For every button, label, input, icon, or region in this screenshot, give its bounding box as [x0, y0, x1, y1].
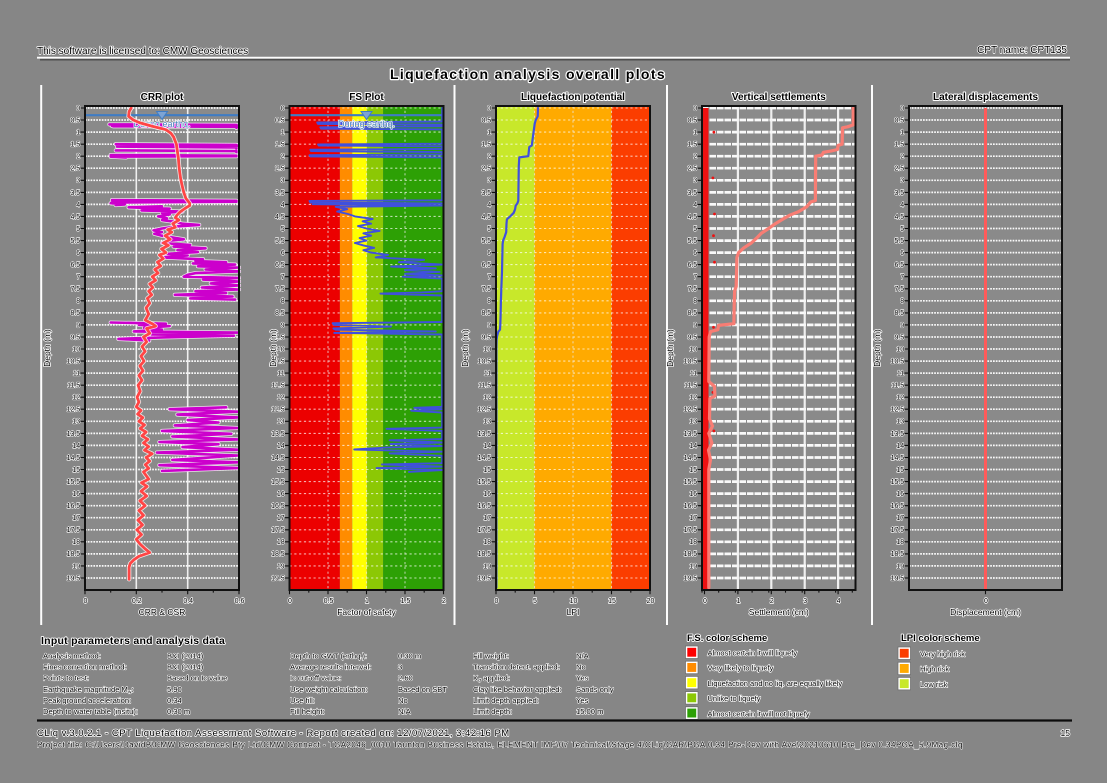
svg-text:8.5: 8.5	[70, 310, 80, 317]
svg-text:10.5: 10.5	[684, 358, 698, 365]
svg-text:6.5: 6.5	[687, 262, 697, 269]
svg-text:19.5: 19.5	[271, 575, 285, 582]
svg-text:12: 12	[483, 395, 491, 402]
svg-text:Depth (m): Depth (m)	[665, 329, 675, 367]
svg-text:10: 10	[72, 346, 80, 353]
svg-text:7: 7	[76, 274, 80, 281]
svg-text:10.5: 10.5	[891, 358, 905, 365]
svg-text:9: 9	[487, 322, 491, 329]
svg-text:3.5: 3.5	[894, 190, 904, 197]
svg-text:Fill weight:: Fill weight:	[473, 651, 509, 660]
svg-text:8.5: 8.5	[275, 310, 285, 317]
svg-text:Almost certain it will liquefy: Almost certain it will liquefy	[708, 649, 798, 658]
svg-text:1.5: 1.5	[481, 142, 491, 149]
svg-text:12.5: 12.5	[891, 407, 905, 414]
svg-text:No: No	[398, 696, 408, 705]
svg-text:10: 10	[483, 346, 491, 353]
svg-text:0.5: 0.5	[894, 118, 904, 125]
svg-text:15: 15	[483, 467, 491, 474]
svg-text:Fill height:: Fill height:	[290, 707, 325, 716]
svg-text:13: 13	[689, 419, 697, 426]
svg-text:14: 14	[483, 443, 491, 450]
svg-text:12: 12	[896, 395, 904, 402]
svg-text:17.5: 17.5	[684, 527, 698, 534]
svg-text:11: 11	[897, 371, 904, 378]
svg-text:3.5: 3.5	[687, 190, 697, 197]
svg-text:10: 10	[277, 346, 285, 353]
svg-text:1: 1	[693, 130, 697, 137]
svg-text:18: 18	[72, 539, 80, 546]
svg-text:3: 3	[487, 178, 491, 185]
svg-text:3.5: 3.5	[481, 190, 491, 197]
svg-text:0: 0	[984, 598, 988, 605]
svg-text:4.5: 4.5	[894, 214, 904, 221]
svg-text:4: 4	[281, 202, 285, 209]
svg-text:18.5: 18.5	[684, 551, 698, 558]
svg-text:11.5: 11.5	[684, 383, 697, 390]
svg-text:Input parameters and analysis: Input parameters and analysis data	[41, 635, 225, 647]
svg-text:Yes: Yes	[576, 696, 589, 705]
svg-text:5.5: 5.5	[687, 238, 697, 245]
svg-text:15.00 m: 15.00 m	[576, 707, 603, 716]
svg-text:19.5: 19.5	[891, 575, 905, 582]
svg-text:N/A: N/A	[398, 707, 412, 716]
svg-text:2: 2	[281, 154, 285, 161]
svg-text:0.5: 0.5	[70, 118, 80, 125]
svg-text:Displacement (cm): Displacement (cm)	[950, 607, 1021, 617]
svg-text:18.5: 18.5	[67, 551, 81, 558]
svg-text:2: 2	[770, 598, 774, 605]
svg-text:3: 3	[76, 178, 80, 185]
svg-text:11.5: 11.5	[272, 383, 285, 390]
svg-text:12: 12	[277, 395, 285, 402]
svg-text:Earthquake magnitude Mw:: Earthquake magnitude Mw:	[43, 685, 134, 696]
svg-text:17.5: 17.5	[67, 527, 81, 534]
svg-text:15.5: 15.5	[684, 479, 698, 486]
svg-text:3.5: 3.5	[70, 190, 80, 197]
svg-text:2: 2	[76, 154, 80, 161]
svg-text:5: 5	[693, 226, 697, 233]
svg-text:11: 11	[277, 371, 284, 378]
svg-text:0.2: 0.2	[132, 598, 142, 605]
svg-text:15: 15	[896, 467, 904, 474]
svg-text:14.5: 14.5	[891, 455, 905, 462]
svg-text:0.5: 0.5	[275, 118, 285, 125]
svg-text:16.5: 16.5	[684, 503, 698, 510]
svg-text:B&I (2014): B&I (2014)	[167, 651, 204, 660]
svg-text:No: No	[576, 663, 586, 672]
svg-text:1.5: 1.5	[894, 142, 904, 149]
svg-text:0.5: 0.5	[324, 598, 334, 605]
svg-text:16.5: 16.5	[271, 503, 285, 510]
svg-text:6: 6	[281, 250, 285, 257]
svg-text:16: 16	[483, 491, 491, 498]
svg-text:2.5: 2.5	[481, 166, 491, 173]
svg-text:During earthq.: During earthq.	[338, 119, 395, 129]
svg-text:5: 5	[900, 226, 904, 233]
svg-text:1: 1	[736, 598, 740, 605]
svg-text:Depth (m): Depth (m)	[460, 329, 470, 367]
svg-text:Limit depth:: Limit depth:	[473, 707, 512, 716]
svg-text:0: 0	[84, 598, 88, 605]
svg-text:8: 8	[487, 298, 491, 305]
svg-text:3: 3	[693, 178, 697, 185]
svg-text:14: 14	[689, 443, 697, 450]
svg-text:Use weight calculation:: Use weight calculation:	[290, 685, 368, 694]
svg-text:7: 7	[487, 274, 491, 281]
svg-text:14: 14	[277, 443, 285, 450]
svg-text:2.5: 2.5	[275, 166, 285, 173]
svg-text:LPI: LPI	[567, 607, 580, 617]
svg-text:17: 17	[72, 515, 80, 522]
svg-text:0: 0	[900, 105, 904, 112]
svg-text:5.5: 5.5	[70, 238, 80, 245]
svg-text:15: 15	[72, 467, 80, 474]
svg-text:6: 6	[900, 250, 904, 257]
svg-text:Average results interval:: Average results interval:	[290, 663, 371, 672]
svg-text:8: 8	[900, 298, 904, 305]
svg-text:18: 18	[689, 539, 697, 546]
svg-text:16: 16	[896, 491, 904, 498]
svg-text:6.5: 6.5	[481, 262, 491, 269]
svg-text:7.5: 7.5	[275, 286, 285, 293]
svg-text:N/A: N/A	[576, 651, 590, 660]
svg-text:Depth (m): Depth (m)	[268, 329, 278, 367]
svg-text:Sands only: Sands only	[576, 685, 614, 694]
svg-text:0.4: 0.4	[183, 598, 193, 605]
svg-text:2: 2	[693, 154, 697, 161]
svg-text:5.90: 5.90	[167, 685, 182, 694]
svg-text:Liquefaction and no liq. are e: Liquefaction and no liq. are equally lik…	[708, 679, 843, 688]
svg-text:0: 0	[495, 598, 499, 605]
svg-text:10.5: 10.5	[67, 358, 81, 365]
svg-text:9.5: 9.5	[687, 334, 697, 341]
svg-text:3: 3	[281, 178, 285, 185]
svg-text:18.5: 18.5	[891, 551, 905, 558]
svg-text:9.5: 9.5	[894, 334, 904, 341]
svg-text:8.5: 8.5	[481, 310, 491, 317]
svg-text:5: 5	[533, 598, 537, 605]
svg-text:Low risk: Low risk	[920, 680, 948, 689]
svg-text:B&I (2014): B&I (2014)	[167, 663, 204, 672]
svg-text:16: 16	[689, 491, 697, 498]
svg-text:9.5: 9.5	[70, 334, 80, 341]
svg-text:12.5: 12.5	[478, 407, 492, 414]
svg-text:5: 5	[76, 226, 80, 233]
svg-text:14: 14	[896, 443, 904, 450]
svg-text:4: 4	[76, 202, 80, 209]
svg-text:Clay like behavior applied:: Clay like behavior applied:	[473, 685, 562, 694]
svg-text:Analysis method:: Analysis method:	[43, 651, 101, 660]
svg-text:8.5: 8.5	[894, 310, 904, 317]
svg-text:13.5: 13.5	[478, 431, 492, 438]
svg-text:Depth (m): Depth (m)	[872, 329, 882, 367]
svg-text:LPI color scheme: LPI color scheme	[901, 633, 980, 644]
svg-text:4.5: 4.5	[70, 214, 80, 221]
svg-text:1.5: 1.5	[401, 598, 411, 605]
svg-text:15: 15	[608, 598, 616, 605]
svg-text:1: 1	[281, 130, 285, 137]
svg-text:20: 20	[647, 598, 655, 605]
svg-text:0: 0	[703, 598, 707, 605]
svg-text:7: 7	[693, 274, 697, 281]
svg-text:11.5: 11.5	[67, 383, 80, 390]
svg-text:17: 17	[689, 515, 697, 522]
svg-text:14.5: 14.5	[684, 455, 698, 462]
svg-text:Very high risk: Very high risk	[920, 650, 965, 659]
svg-text:19: 19	[72, 563, 80, 570]
svg-text:Almost certain it will not liq: Almost certain it will not liquefy	[708, 709, 810, 718]
svg-text:17: 17	[896, 515, 904, 522]
svg-text:11: 11	[484, 371, 491, 378]
svg-text:0.5: 0.5	[481, 118, 491, 125]
svg-text:3: 3	[900, 178, 904, 185]
svg-text:8: 8	[76, 298, 80, 305]
svg-text:Lateral displacements: Lateral displacements	[933, 92, 1038, 103]
svg-text:10: 10	[570, 598, 578, 605]
svg-text:2.5: 2.5	[70, 166, 80, 173]
svg-text:Factor of safety: Factor of safety	[337, 607, 396, 617]
svg-text:11.5: 11.5	[478, 383, 491, 390]
svg-text:This software is licensed to:: This software is licensed to: CMW Geosci…	[37, 46, 248, 57]
svg-text:12: 12	[689, 395, 697, 402]
svg-text:5.5: 5.5	[894, 238, 904, 245]
svg-text:High risk: High risk	[920, 665, 949, 674]
svg-text:4.5: 4.5	[481, 214, 491, 221]
svg-text:14.5: 14.5	[67, 455, 81, 462]
svg-text:0: 0	[76, 105, 80, 112]
svg-text:18: 18	[896, 539, 904, 546]
svg-text:12: 12	[72, 395, 80, 402]
svg-text:2.5: 2.5	[687, 166, 697, 173]
svg-text:F.S. color scheme: F.S. color scheme	[687, 633, 767, 644]
svg-text:19.5: 19.5	[684, 575, 698, 582]
svg-text:Limit depth applied:: Limit depth applied:	[473, 696, 539, 705]
svg-text:1: 1	[365, 598, 369, 605]
svg-text:5.5: 5.5	[275, 238, 285, 245]
svg-text:13.5: 13.5	[271, 431, 285, 438]
svg-text:Based on SBT: Based on SBT	[398, 685, 447, 694]
svg-text:7: 7	[281, 274, 285, 281]
svg-text:6: 6	[76, 250, 80, 257]
svg-text:13.5: 13.5	[891, 431, 905, 438]
svg-text:4: 4	[900, 202, 904, 209]
svg-text:8: 8	[693, 298, 697, 305]
svg-text:17.5: 17.5	[478, 527, 492, 534]
svg-text:19.5: 19.5	[67, 575, 81, 582]
svg-text:12.5: 12.5	[271, 407, 285, 414]
svg-text:CRR & CSR: CRR & CSR	[139, 607, 186, 617]
svg-text:10: 10	[689, 346, 697, 353]
svg-text:15.5: 15.5	[478, 479, 492, 486]
svg-text:6: 6	[487, 250, 491, 257]
svg-text:CLiq v.3.0.2.1 - CPT Liquefact: CLiq v.3.0.2.1 - CPT Liquefaction Assess…	[37, 728, 510, 739]
svg-text:4.5: 4.5	[687, 214, 697, 221]
svg-text:8.5: 8.5	[687, 310, 697, 317]
svg-text:0: 0	[693, 105, 697, 112]
svg-text:7.5: 7.5	[481, 286, 491, 293]
svg-text:16.5: 16.5	[478, 503, 492, 510]
svg-text:19: 19	[483, 563, 491, 570]
svg-text:16.5: 16.5	[67, 503, 81, 510]
svg-text:19: 19	[896, 563, 904, 570]
svg-text:11.5: 11.5	[891, 383, 904, 390]
svg-text:19: 19	[689, 563, 697, 570]
svg-text:18: 18	[483, 539, 491, 546]
svg-text:15.5: 15.5	[67, 479, 81, 486]
svg-text:11: 11	[73, 371, 80, 378]
svg-text:11: 11	[690, 371, 697, 378]
svg-text:0.5: 0.5	[687, 118, 697, 125]
svg-text:0.34: 0.34	[167, 696, 182, 705]
svg-text:5.5: 5.5	[481, 238, 491, 245]
svg-text:15: 15	[689, 467, 697, 474]
svg-text:9: 9	[693, 322, 697, 329]
svg-text:6.5: 6.5	[275, 262, 285, 269]
svg-text:Vertical settlements: Vertical settlements	[732, 92, 826, 103]
svg-text:Unlike to liquefy: Unlike to liquefy	[708, 694, 761, 703]
svg-text:1.5: 1.5	[275, 142, 285, 149]
svg-text:Liquefaction analysis overall: Liquefaction analysis overall plots	[390, 66, 666, 82]
svg-text:Liquefaction potential: Liquefaction potential	[521, 92, 625, 103]
svg-text:Depth to water table (insitu):: Depth to water table (insitu):	[43, 707, 138, 716]
svg-text:1.5: 1.5	[687, 142, 697, 149]
svg-text:Depth to GWT (erthq.):: Depth to GWT (erthq.):	[290, 651, 367, 660]
svg-text:17.5: 17.5	[271, 527, 285, 534]
svg-text:6.5: 6.5	[894, 262, 904, 269]
svg-text:16.5: 16.5	[891, 503, 905, 510]
svg-text:13: 13	[896, 419, 904, 426]
svg-text:9: 9	[281, 322, 285, 329]
svg-text:2: 2	[900, 154, 904, 161]
svg-text:15.5: 15.5	[891, 479, 905, 486]
svg-text:16: 16	[72, 491, 80, 498]
svg-text:4: 4	[693, 202, 697, 209]
svg-text:9.5: 9.5	[481, 334, 491, 341]
svg-text:13.5: 13.5	[67, 431, 81, 438]
svg-text:Depth (m): Depth (m)	[42, 329, 52, 367]
svg-text:Yes: Yes	[576, 674, 589, 683]
svg-text:Peak ground acceleration:: Peak ground acceleration:	[43, 696, 131, 705]
svg-text:7.5: 7.5	[687, 286, 697, 293]
svg-text:Points to test:: Points to test:	[43, 674, 89, 683]
svg-text:13: 13	[483, 419, 491, 426]
svg-text:19.5: 19.5	[478, 575, 492, 582]
svg-text:1: 1	[76, 130, 80, 137]
svg-text:1: 1	[487, 130, 491, 137]
svg-text:Fines correction method:: Fines correction method:	[43, 663, 127, 672]
svg-text:1: 1	[900, 130, 904, 137]
svg-text:0.30 m: 0.30 m	[398, 651, 421, 660]
svg-text:19: 19	[277, 563, 285, 570]
svg-text:6.5: 6.5	[70, 262, 80, 269]
svg-text:15: 15	[1061, 728, 1071, 738]
svg-text:14.5: 14.5	[271, 455, 285, 462]
svg-text:CPT name: CPT135: CPT name: CPT135	[977, 45, 1067, 56]
svg-text:0.6: 0.6	[235, 598, 245, 605]
svg-text:14.5: 14.5	[478, 455, 492, 462]
svg-text:0.30 m: 0.30 m	[167, 707, 190, 716]
svg-text:Project file: C:\Users\DavidB\: Project file: C:\Users\DavidB\CMW Geosci…	[37, 741, 963, 750]
svg-text:7.5: 7.5	[894, 286, 904, 293]
svg-text:Very likely to liquefy: Very likely to liquefy	[708, 664, 774, 673]
svg-text:3.5: 3.5	[275, 190, 285, 197]
svg-text:17.5: 17.5	[891, 527, 905, 534]
svg-text:10.5: 10.5	[478, 358, 492, 365]
svg-text:17: 17	[483, 515, 491, 522]
svg-text:1.5: 1.5	[70, 142, 80, 149]
svg-text:9: 9	[76, 322, 80, 329]
svg-text:10: 10	[896, 346, 904, 353]
svg-text:9: 9	[900, 322, 904, 329]
svg-text:18: 18	[277, 539, 285, 546]
svg-text:0: 0	[487, 105, 491, 112]
svg-text:18.5: 18.5	[271, 551, 285, 558]
svg-text:14: 14	[72, 443, 80, 450]
svg-text:13: 13	[277, 419, 285, 426]
svg-text:13: 13	[72, 419, 80, 426]
svg-text:3: 3	[803, 598, 807, 605]
svg-text:0: 0	[288, 598, 292, 605]
svg-text:4.5: 4.5	[275, 214, 285, 221]
svg-text:7: 7	[900, 274, 904, 281]
svg-text:Ic cut-off value:: Ic cut-off value:	[290, 674, 341, 683]
svg-text:5: 5	[281, 226, 285, 233]
svg-text:Based on Ic value: Based on Ic value	[167, 674, 227, 683]
svg-text:Transition detect. applied:: Transition detect. applied:	[473, 663, 560, 672]
svg-text:13.5: 13.5	[684, 431, 698, 438]
svg-text:5: 5	[487, 226, 491, 233]
svg-text:8: 8	[281, 298, 285, 305]
svg-text:Use fill:: Use fill:	[290, 696, 315, 705]
svg-text:16: 16	[277, 491, 285, 498]
svg-text:18.5: 18.5	[478, 551, 492, 558]
svg-text:3: 3	[398, 663, 402, 672]
svg-text:2: 2	[487, 154, 491, 161]
svg-text:CRR plot: CRR plot	[141, 92, 184, 103]
svg-text:15.5: 15.5	[271, 479, 285, 486]
svg-text:Settlement (cm): Settlement (cm)	[749, 607, 809, 617]
svg-text:6: 6	[693, 250, 697, 257]
svg-text:15: 15	[277, 467, 285, 474]
svg-text:7.5: 7.5	[70, 286, 80, 293]
svg-text:0: 0	[281, 105, 285, 112]
svg-text:2: 2	[442, 598, 446, 605]
svg-text:FS Plot: FS Plot	[349, 92, 384, 103]
svg-text:4: 4	[487, 202, 491, 209]
svg-text:2.5: 2.5	[894, 166, 904, 173]
svg-text:4: 4	[837, 598, 841, 605]
svg-text:12.5: 12.5	[684, 407, 698, 414]
svg-text:17: 17	[277, 515, 285, 522]
svg-text:12.5: 12.5	[67, 407, 81, 414]
svg-text:2.60: 2.60	[398, 674, 413, 683]
